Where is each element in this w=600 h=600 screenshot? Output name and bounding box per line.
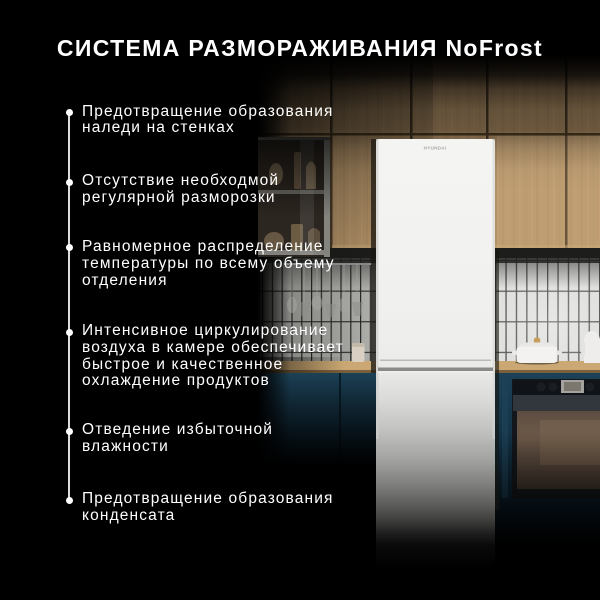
svg-text:HYUNDAI: HYUNDAI: [424, 146, 447, 151]
